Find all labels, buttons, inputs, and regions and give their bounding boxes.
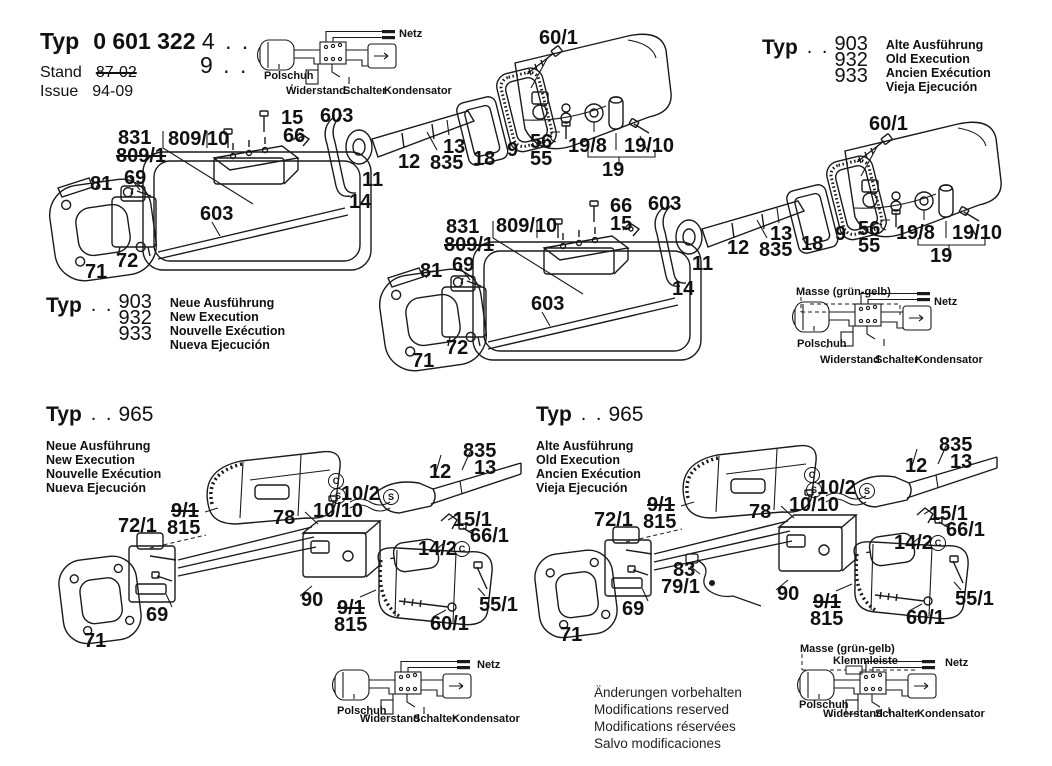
part-label-15: 15 (610, 214, 632, 234)
part-label-71: 71 (412, 351, 434, 371)
part-label-69: 69 (452, 255, 474, 275)
stand-row: Stand87-02 (40, 64, 137, 82)
part-label-kondensator: Kondensator (917, 708, 985, 720)
type-code-suffix: 4 . . (202, 28, 250, 54)
part-label-12: 12 (727, 238, 749, 258)
type-block-903-old: Typ . . 903932933 Alte AusführungOld Exe… (762, 36, 991, 94)
part-label-81: 81 (90, 174, 112, 194)
part-label-13: 13 (950, 452, 972, 472)
part-label-masse-grün-gelb-: Masse (grün-gelb) (800, 643, 895, 655)
type-number: 0 601 322 4 . . (93, 28, 250, 54)
title-block: Typ0 601 322 4 . . 9 . . Stand87-02 Issu… (40, 28, 280, 112)
part-label-14-2: 14/2 (418, 539, 457, 559)
part-label-12: 12 (398, 152, 420, 172)
part-label-13: 13 (474, 458, 496, 478)
stand-value: 87-02 (96, 64, 137, 81)
part-label-widerstand: Widerstand (360, 713, 420, 725)
part-label-69: 69 (146, 605, 168, 625)
type-block-903-new: Typ . . 903932933 Neue AusführungNew Exe… (46, 294, 285, 352)
execution-languages: Neue AusführungNew Execution Nouvelle Ex… (170, 294, 285, 352)
part-label-603: 603 (320, 106, 353, 126)
part-label-19: 19 (930, 246, 952, 266)
part-label-klemmleiste: Klemmleiste (833, 655, 898, 667)
part-label-polschuh: Polschuh (264, 70, 314, 82)
typ-dots: . . (91, 294, 114, 317)
issue-label: Issue (40, 83, 78, 100)
part-label-widerstand: Widerstand (820, 354, 880, 366)
part-label-603: 603 (531, 294, 564, 314)
part-label-kondensator: Kondensator (452, 713, 520, 725)
part-label-9: 9 (507, 140, 518, 160)
part-label-10-10: 10/10 (789, 495, 839, 515)
typ-label: Typ (40, 28, 79, 54)
part-label-69: 69 (622, 599, 644, 619)
circled-letter-s: S (859, 483, 875, 499)
part-label-72-1: 72/1 (118, 516, 157, 536)
part-label-polschuh: Polschuh (797, 338, 847, 350)
part-label-55: 55 (858, 236, 880, 256)
part-label-widerstand: Widerstand (823, 708, 883, 720)
type-number: 965 (118, 403, 153, 427)
part-label-603: 603 (200, 204, 233, 224)
execution-languages: Alte AusführungOld Execution Ancien Exéc… (536, 437, 644, 495)
part-label-66-1: 66/1 (946, 520, 985, 540)
circled-letter-c: C (930, 535, 946, 551)
part-label-79-1: 79/1 (661, 577, 700, 597)
part-label-netz: Netz (945, 657, 968, 669)
part-label-19-10: 19/10 (952, 223, 1002, 243)
typ-label: Typ (46, 294, 82, 318)
part-label-72: 72 (446, 338, 468, 358)
part-label-809-10: 809/10 (496, 216, 557, 236)
part-label-19-8: 19/8 (568, 136, 607, 156)
execution-languages: Neue AusführungNew Execution Nouvelle Ex… (46, 437, 161, 495)
typ-label: Typ (762, 36, 798, 60)
part-label-19: 19 (602, 160, 624, 180)
part-label-78: 78 (273, 508, 295, 528)
part-label-12: 12 (429, 462, 451, 482)
part-label-9: 9 (835, 224, 846, 244)
type-numbers: 903932933 (834, 36, 867, 84)
part-label-66-1: 66/1 (470, 526, 509, 546)
typ-label: Typ (46, 403, 82, 427)
part-label-71: 71 (85, 262, 107, 282)
type-block-965-old: Typ . . 965 Alte AusführungOld Execution… (536, 403, 644, 495)
part-label-72-1: 72/1 (594, 510, 633, 530)
part-label-815: 815 (643, 512, 676, 532)
part-label-18: 18 (801, 234, 823, 254)
part-label-835: 835 (759, 240, 792, 260)
issue-row: Issue94-09 (40, 83, 133, 101)
part-label-90: 90 (777, 584, 799, 604)
part-label-netz: Netz (477, 659, 500, 671)
typ-label: Typ (536, 403, 572, 427)
part-label-55-1: 55/1 (479, 595, 518, 615)
part-label-809-1: 809/1 (444, 235, 494, 255)
part-label-603: 603 (648, 194, 681, 214)
part-label-69: 69 (124, 168, 146, 188)
part-label-12: 12 (905, 456, 927, 476)
part-label-19-10: 19/10 (624, 136, 674, 156)
part-label-60-1: 60/1 (539, 28, 578, 48)
type-code-suffix-alt: 9 . . (200, 52, 248, 79)
part-label-71: 71 (84, 631, 106, 651)
part-label-14-2: 14/2 (894, 533, 933, 553)
circled-letter-c: C (454, 541, 470, 557)
part-label-netz: Netz (934, 296, 957, 308)
part-label-78: 78 (749, 502, 771, 522)
part-label-809-10: 809/10 (168, 129, 229, 149)
part-label-netz: Netz (399, 28, 422, 40)
part-label-schalter: Schalter (413, 713, 456, 725)
part-label-81: 81 (420, 261, 442, 281)
part-label-14: 14 (349, 192, 371, 212)
part-label-72: 72 (116, 251, 138, 271)
part-label-19-8: 19/8 (896, 223, 935, 243)
part-label-60-1: 60/1 (906, 608, 945, 628)
part-label-10-10: 10/10 (313, 501, 363, 521)
part-label-schalter: Schalter (875, 708, 918, 720)
type-numbers: 903932933 (118, 294, 151, 342)
part-label-60-1: 60/1 (430, 614, 469, 634)
modifications-note: Änderungen vorbehalten Modifications res… (594, 684, 742, 752)
part-label-kondensator: Kondensator (915, 354, 983, 366)
typ-dots: . . (581, 403, 604, 426)
part-label-14: 14 (672, 279, 694, 299)
part-label-60-1: 60/1 (869, 114, 908, 134)
part-label-kondensator: Kondensator (384, 85, 452, 97)
part-label-71: 71 (560, 625, 582, 645)
part-label-11: 11 (362, 170, 383, 190)
assembly-2-art (376, 201, 804, 375)
part-label-widerstand: Widerstand (286, 85, 346, 97)
type-number: 965 (608, 403, 643, 427)
part-label-schalter: Schalter (875, 354, 918, 366)
execution-languages: Alte AusführungOld Execution Ancien Exéc… (886, 36, 991, 94)
parts-diagram-page: Typ0 601 322 4 . . 9 . . Stand87-02 Issu… (0, 0, 1052, 766)
circled-letter-s: S (383, 489, 399, 505)
part-label-66: 66 (283, 126, 305, 146)
issue-value: 94-09 (92, 83, 133, 100)
part-label-55: 55 (530, 149, 552, 169)
part-label-815: 815 (334, 615, 367, 635)
type-block-965-new: Typ . . 965 Neue AusführungNew Execution… (46, 403, 161, 495)
part-label-masse-grün-gelb-: Masse (grün-gelb) (796, 286, 891, 298)
part-label-55-1: 55/1 (955, 589, 994, 609)
part-label-835: 835 (430, 153, 463, 173)
part-label-809-1: 809/1 (116, 146, 166, 166)
part-label-18: 18 (473, 149, 495, 169)
type-code: 0 601 322 (93, 28, 195, 54)
stand-label: Stand (40, 64, 82, 81)
part-label-815: 815 (810, 609, 843, 629)
part-label-90: 90 (301, 590, 323, 610)
typ-dots: . . (91, 403, 114, 426)
part-label-815: 815 (167, 518, 200, 538)
typ-dots: . . (807, 36, 830, 59)
part-label-schalter: Schalter (343, 85, 386, 97)
part-label-11: 11 (692, 254, 713, 274)
